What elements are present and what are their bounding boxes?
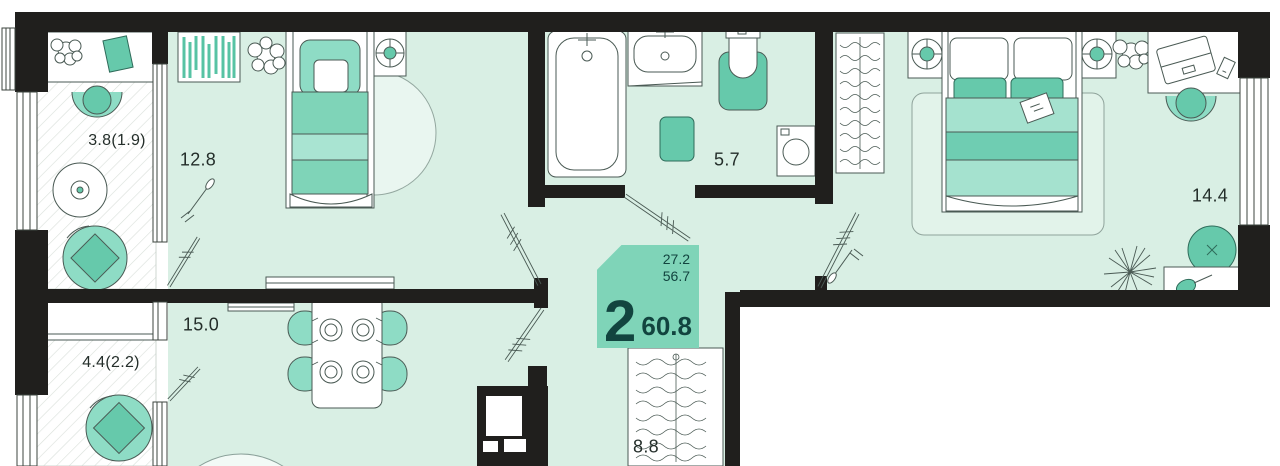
dresser	[266, 277, 394, 289]
window-balcony-top	[153, 64, 167, 242]
badge-total-area: 60.8	[641, 311, 692, 342]
round-table	[53, 163, 107, 217]
balcony-shelf	[46, 302, 160, 340]
area-badge: 27.2 56.7 2 60.8	[597, 245, 699, 348]
badge-area-line1: 27.2	[663, 251, 690, 267]
desk	[1148, 31, 1240, 93]
badge-rooms-count: 2	[604, 298, 636, 346]
room-label-balcony-bottom: 4.4(2.2)	[82, 354, 140, 372]
dining-table	[312, 296, 382, 408]
window-left-bottom	[17, 395, 37, 466]
nightstand-left	[908, 30, 946, 78]
armchair	[63, 226, 127, 290]
sink	[628, 28, 702, 86]
room-label-bathroom: 5.7	[714, 150, 740, 171]
window-corner-sliver	[2, 28, 15, 90]
room-label-balcony-top: 3.8(1.9)	[88, 132, 146, 150]
window-bedroom	[1240, 78, 1268, 225]
room-label-small-room: 12.8	[180, 150, 216, 171]
tv-console	[228, 303, 294, 311]
washing-machine	[777, 126, 815, 176]
wardrobe-bedroom	[836, 33, 884, 173]
bathtub	[548, 31, 626, 177]
room-label-bedroom: 14.4	[1192, 186, 1228, 207]
room-label-living: 15.0	[183, 315, 219, 336]
badge-area-line2: 56.7	[663, 268, 690, 284]
bath-mat	[660, 117, 694, 161]
room-label-hallway: 8.8	[633, 437, 659, 458]
window-balcony-mid	[153, 302, 167, 340]
plan-drawing	[0, 0, 1280, 466]
single-bed	[286, 30, 374, 208]
armchair	[86, 395, 152, 461]
double-bed	[942, 30, 1082, 212]
nightstand	[374, 30, 406, 76]
nightstand-right	[1078, 30, 1116, 78]
window-balcony-bottom	[153, 402, 167, 466]
floor-plan: 3.8(1.9) 12.8 5.7 14.4 15.0 4.4(2.2) 8.8…	[0, 0, 1280, 466]
bookshelf	[178, 32, 240, 82]
window-left-top	[17, 92, 37, 230]
